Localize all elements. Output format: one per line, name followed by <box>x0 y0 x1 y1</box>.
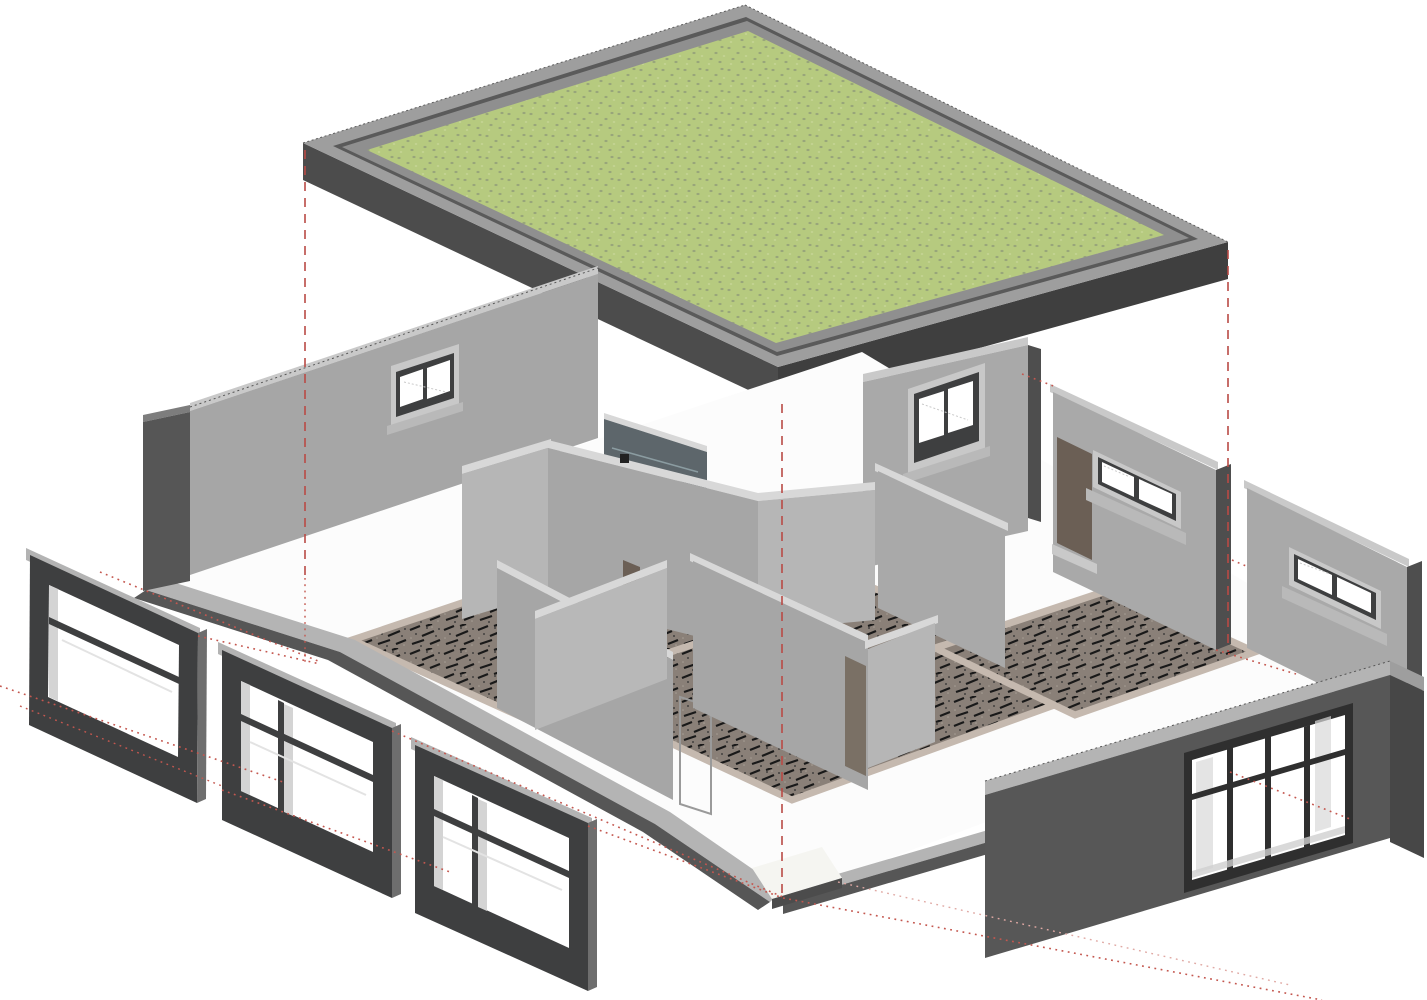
window1-side[interactable] <box>197 629 207 803</box>
window3-side[interactable] <box>588 819 597 991</box>
setback-window-glass-right[interactable] <box>948 381 973 433</box>
door-opening[interactable] <box>845 656 866 776</box>
exploded-axon-drawing <box>0 0 1427 1000</box>
front-window-reflect-2[interactable] <box>1315 716 1331 832</box>
window3-glass-sliver-l[interactable] <box>434 776 443 890</box>
front-window-mullion-1[interactable] <box>1227 747 1233 871</box>
front-wall-end-return[interactable] <box>1390 675 1424 858</box>
front-window-mullion-2[interactable] <box>1265 736 1271 860</box>
setback-wall-end[interactable] <box>1028 345 1041 522</box>
front-window-reflect-1[interactable] <box>1196 757 1213 873</box>
viewport-3d[interactable] <box>0 0 1427 1000</box>
window2-side[interactable] <box>392 724 401 898</box>
setback-window-glass-left[interactable] <box>919 391 944 443</box>
nw-wall-endcap[interactable] <box>143 412 190 591</box>
front-window-mullion-3[interactable] <box>1304 725 1310 849</box>
door-handle[interactable] <box>620 454 629 463</box>
window2-glass-sliver-l[interactable] <box>241 681 250 795</box>
window1-glass-sliver[interactable] <box>49 585 58 701</box>
explode-guide-d10 <box>1232 560 1246 566</box>
